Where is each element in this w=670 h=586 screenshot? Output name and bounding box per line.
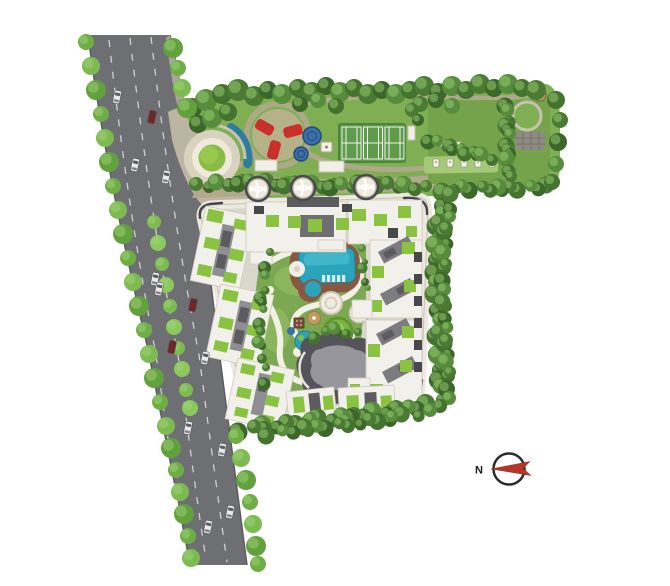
circular-lawn	[513, 102, 541, 130]
street-tree-icon	[86, 80, 106, 100]
median-tree-icon	[163, 299, 177, 313]
hedge-tree-icon	[286, 426, 300, 440]
hedge-tree-icon	[380, 176, 394, 190]
court-pavilion	[408, 126, 415, 140]
median-tree-icon	[179, 383, 193, 397]
street-tree-icon	[140, 345, 158, 363]
canopy-tree-icon	[292, 96, 308, 112]
street-tree-icon	[157, 417, 175, 435]
hedge-tree-icon	[446, 144, 458, 156]
hedge-tree-icon	[386, 410, 398, 422]
hedge-tree-icon	[334, 417, 346, 429]
street-tree-icon	[182, 549, 200, 567]
hedge-tree-icon	[486, 154, 498, 166]
hedge-tree-icon	[441, 321, 453, 333]
canopy-tree-icon	[444, 98, 460, 114]
hedge-tree-icon	[477, 181, 489, 193]
sculpture-planter-icon	[246, 177, 270, 201]
sculpture-planter-icon	[354, 175, 378, 199]
hedge-tree-icon	[498, 150, 515, 167]
canopy-tree-icon	[552, 112, 568, 128]
sculpture-planter-icon	[291, 176, 315, 200]
hedge-tree-icon	[413, 410, 425, 422]
street-tree-icon	[113, 224, 133, 244]
canopy-tree-icon	[310, 92, 326, 108]
hedge-tree-icon	[357, 263, 368, 274]
street-tree-icon	[109, 201, 127, 219]
hedge-tree-icon	[208, 174, 225, 191]
hedge-tree-icon	[440, 258, 452, 270]
street-tree-icon	[236, 470, 256, 490]
street-tree-icon	[99, 152, 119, 172]
hedge-tree-icon	[308, 332, 321, 345]
street-tree-icon	[124, 273, 142, 291]
street-tree-icon	[250, 556, 266, 572]
canopy-tree-icon	[547, 91, 565, 109]
hedge-tree-icon	[439, 333, 453, 347]
street-tree-icon	[171, 483, 189, 501]
gym-equipment-icon	[433, 159, 439, 167]
street-tree-icon	[228, 428, 244, 444]
canopy-tree-icon	[549, 133, 567, 151]
hedge-tree-icon	[525, 180, 537, 192]
canopy-tree-icon	[219, 103, 237, 121]
street-tree-icon	[120, 250, 136, 266]
hedge-tree-icon	[431, 135, 443, 147]
pavilion	[255, 160, 277, 171]
street-tree-icon	[242, 494, 258, 510]
canopy-tree-icon	[428, 92, 444, 108]
canopy-tree-icon	[328, 98, 344, 114]
hedge-tree-icon	[266, 248, 274, 256]
street-tree-icon	[246, 536, 266, 556]
canopy-tree-icon	[544, 174, 560, 190]
street-tree-icon	[174, 504, 194, 524]
hedge-tree-icon	[260, 270, 270, 280]
compass-rose: N	[475, 454, 531, 485]
hedge-tree-icon	[442, 186, 459, 203]
street-tree-icon	[93, 106, 109, 122]
compass-north-label: N	[475, 465, 483, 477]
hedge-tree-icon	[341, 329, 351, 339]
hedge-tree-icon	[444, 366, 456, 378]
street-tree-icon	[244, 515, 262, 533]
street-tree-icon	[78, 34, 94, 50]
hedge-tree-icon	[260, 305, 268, 313]
hedge-tree-icon	[277, 424, 289, 436]
street-tree-icon	[168, 462, 184, 478]
hedge-tree-icon	[256, 326, 266, 336]
pavilion	[319, 161, 344, 172]
canopy-tree-icon	[412, 114, 424, 126]
hedge-tree-icon	[328, 322, 341, 335]
median-tree-icon	[147, 215, 161, 229]
street-tree-icon	[173, 79, 191, 97]
street-tree-icon	[177, 98, 197, 118]
canopy-tree-icon	[526, 80, 546, 100]
hedge-tree-icon	[434, 244, 451, 261]
hedge-tree-icon	[189, 177, 203, 191]
hedge-tree-icon	[420, 180, 432, 192]
hedge-tree-icon	[334, 177, 348, 191]
games-court	[294, 318, 304, 328]
hedge-tree-icon	[358, 244, 366, 252]
hedge-tree-icon	[262, 363, 270, 371]
street-tree-icon	[136, 322, 152, 338]
median-tree-icon	[150, 235, 166, 251]
kids-pool	[304, 280, 322, 298]
street-tree-icon	[180, 528, 196, 544]
site-plan-canvas: N	[0, 0, 670, 586]
hedge-tree-icon	[434, 294, 451, 311]
hedge-tree-icon	[361, 278, 369, 286]
street-tree-icon	[170, 60, 186, 76]
umbrella	[308, 312, 321, 325]
hedge-tree-icon	[423, 403, 437, 417]
street-tree-icon	[96, 129, 114, 147]
canopy-tree-icon	[202, 108, 222, 128]
hedge-tree-icon	[505, 170, 517, 182]
hedge-tree-icon	[252, 336, 265, 349]
street-tree-icon	[163, 38, 183, 58]
median-tree-icon	[155, 257, 169, 271]
street-tree-icon	[105, 178, 121, 194]
hedge-tree-icon	[354, 328, 362, 336]
street-tree-icon	[161, 438, 181, 458]
street-tree-icon	[129, 296, 149, 316]
street-tree-icon	[232, 449, 250, 467]
paver-patio	[515, 132, 545, 150]
hedge-tree-icon	[258, 378, 271, 391]
hedge-tree-icon	[355, 419, 367, 431]
hedge-tree-icon	[439, 221, 453, 235]
hedge-tree-icon	[444, 211, 456, 223]
hedge-tree-icon	[258, 428, 275, 445]
street-tree-icon	[144, 368, 164, 388]
median-tree-icon	[166, 319, 182, 335]
median-tree-icon	[182, 400, 198, 416]
hedge-tree-icon	[500, 103, 514, 117]
street-tree-icon	[152, 394, 168, 410]
hedge-tree-icon	[257, 354, 267, 364]
gym-equipment-icon	[447, 159, 453, 167]
hedge-tree-icon	[408, 182, 422, 196]
canopy-tree-icon	[272, 84, 292, 104]
median-tree-icon	[174, 361, 190, 377]
sculpture-planters	[246, 175, 378, 201]
hedge-tree-icon	[365, 285, 371, 291]
canopy-tree-icon	[548, 156, 564, 172]
street-tree-icon	[82, 57, 100, 75]
tennis-courts	[339, 124, 415, 162]
